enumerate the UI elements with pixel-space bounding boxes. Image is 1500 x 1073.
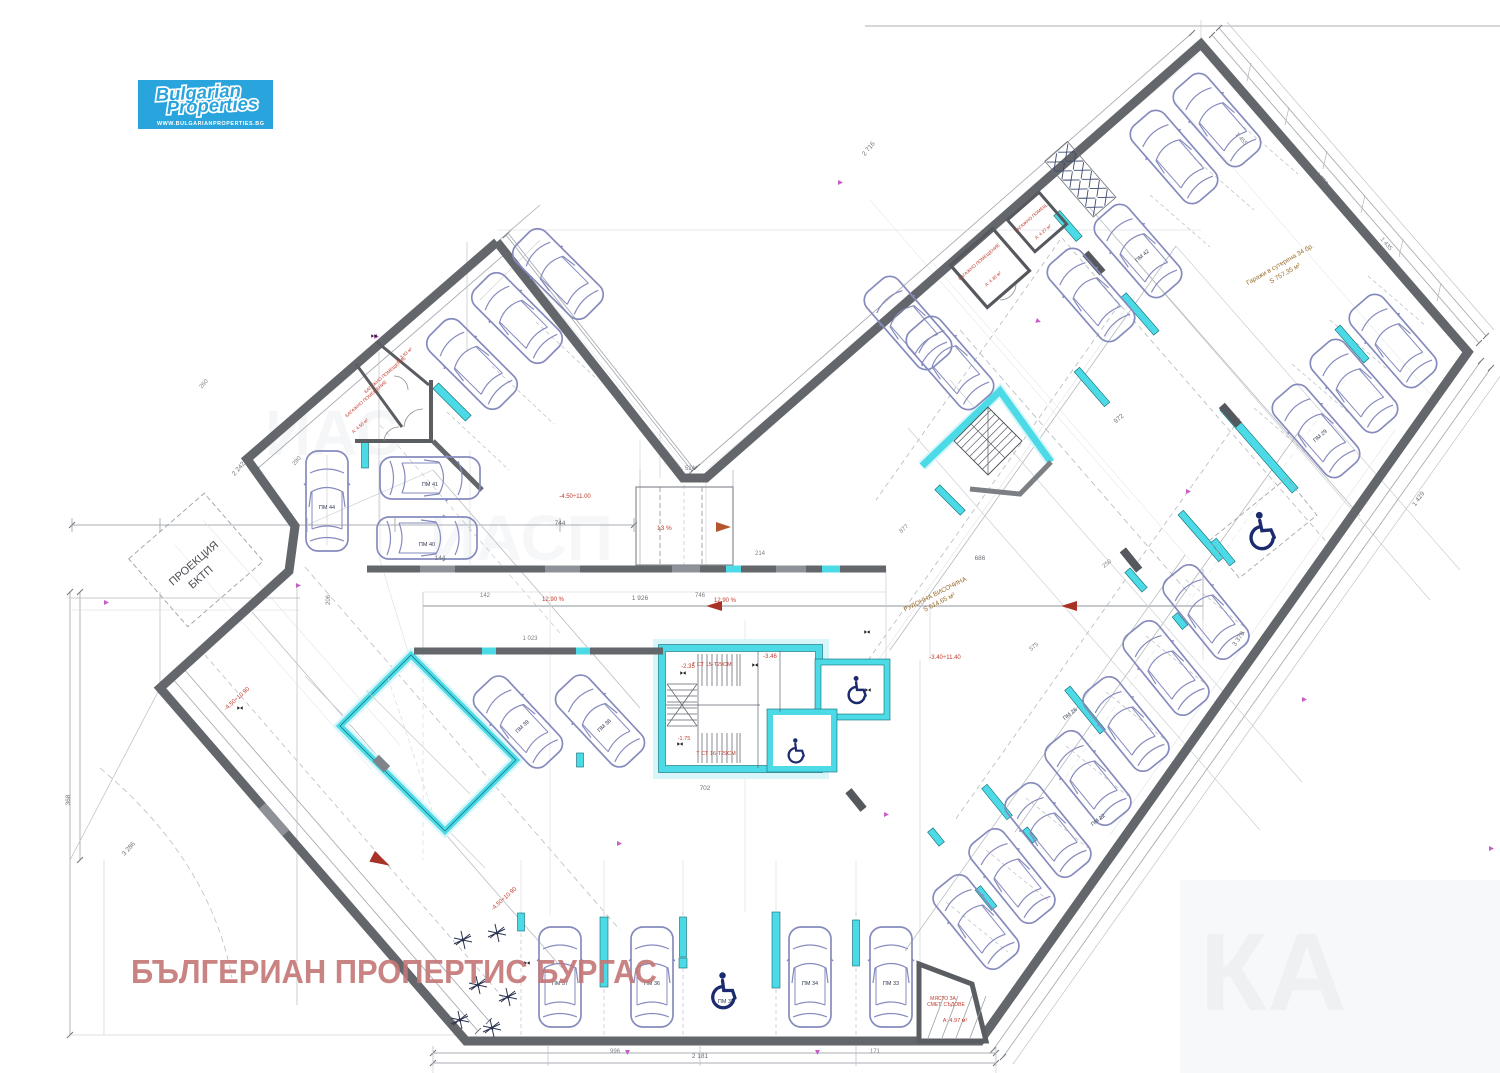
svg-text:-3.46: -3.46: [763, 654, 777, 660]
svg-text:А: 4.30 м²: А: 4.30 м²: [984, 270, 1003, 287]
svg-text:Г СТ 15-Т29СМ: Г СТ 15-Т29СМ: [692, 662, 732, 668]
svg-text:144: 144: [435, 555, 446, 562]
svg-text:1 455: 1 455: [1234, 132, 1249, 148]
svg-text:368: 368: [65, 794, 72, 805]
svg-text:171: 171: [870, 1049, 881, 1055]
svg-text:12.90 %: 12.90 %: [542, 597, 565, 603]
svg-text:250: 250: [1102, 558, 1114, 569]
svg-text:2 716: 2 716: [861, 140, 877, 157]
svg-text:БАГАЖНО ПОМЕЩЕНИЕ: БАГАЖНО ПОМЕЩЕНИЕ: [363, 355, 407, 394]
svg-text:1 429: 1 429: [1411, 490, 1426, 508]
svg-text:ПМ 41: ПМ 41: [422, 482, 438, 488]
svg-text:206: 206: [326, 594, 332, 605]
svg-text:142: 142: [480, 593, 491, 599]
svg-text:-1.75: -1.75: [678, 736, 691, 742]
svg-text:БЪЛГЕРИАН ПРОПЕРТИС БУРГАС: БЪЛГЕРИАН ПРОПЕРТИС БУРГАС: [131, 953, 657, 990]
svg-text:2 181: 2 181: [692, 1053, 709, 1060]
svg-text:ПМ 38: ПМ 38: [597, 718, 613, 733]
svg-text:13 %: 13 %: [657, 525, 672, 532]
svg-text:-3.40÷11.40: -3.40÷11.40: [929, 655, 961, 661]
svg-text:972: 972: [1113, 412, 1126, 425]
svg-text:ПМ 42: ПМ 42: [1135, 249, 1151, 264]
svg-text:ПМ 40: ПМ 40: [419, 542, 435, 548]
svg-text:ПМ 39: ПМ 39: [515, 719, 531, 734]
svg-text:877: 877: [899, 523, 911, 535]
svg-text:3 286: 3 286: [121, 840, 137, 857]
svg-text:1 926: 1 926: [632, 595, 649, 602]
svg-text:КА: КА: [1200, 911, 1347, 1034]
svg-text:А: 4.97 м²: А: 4.97 м²: [943, 1018, 968, 1024]
svg-text:ПМ 44: ПМ 44: [319, 505, 335, 511]
svg-text:746: 746: [695, 593, 706, 599]
svg-text:524: 524: [685, 466, 696, 472]
svg-text:Т СТ 16-Т29СМ: Т СТ 16-Т29СМ: [696, 751, 736, 757]
svg-text:WWW.BULGARIANPROPERTIES.BG: WWW.BULGARIANPROPERTIES.BG: [157, 121, 264, 127]
svg-text:ПМ 33: ПМ 33: [883, 981, 899, 987]
svg-text:260: 260: [199, 378, 211, 390]
svg-text:СМЕТ. СЪДОВЕ: СМЕТ. СЪДОВЕ: [927, 1002, 965, 1008]
svg-text:ИАС: ИАС: [265, 397, 402, 469]
svg-text:1 023: 1 023: [522, 636, 538, 642]
svg-text:-4.50÷10.90: -4.50÷10.90: [490, 886, 518, 912]
svg-text:214: 214: [755, 551, 766, 557]
svg-text:-4.50÷11.00: -4.50÷11.00: [559, 494, 591, 500]
svg-text:744: 744: [555, 520, 566, 527]
svg-text:686: 686: [975, 555, 986, 562]
svg-text:702: 702: [700, 785, 711, 792]
svg-text:ПМ 26: ПМ 26: [1062, 707, 1078, 722]
svg-text:12.90 %: 12.90 %: [714, 598, 737, 604]
svg-text:ПМ 29: ПМ 29: [1313, 429, 1329, 444]
svg-text:ИАСП: ИАСП: [430, 502, 613, 574]
svg-text:ПМ 34: ПМ 34: [802, 981, 818, 987]
svg-text:996: 996: [610, 1049, 621, 1055]
svg-text:575: 575: [1029, 641, 1041, 652]
